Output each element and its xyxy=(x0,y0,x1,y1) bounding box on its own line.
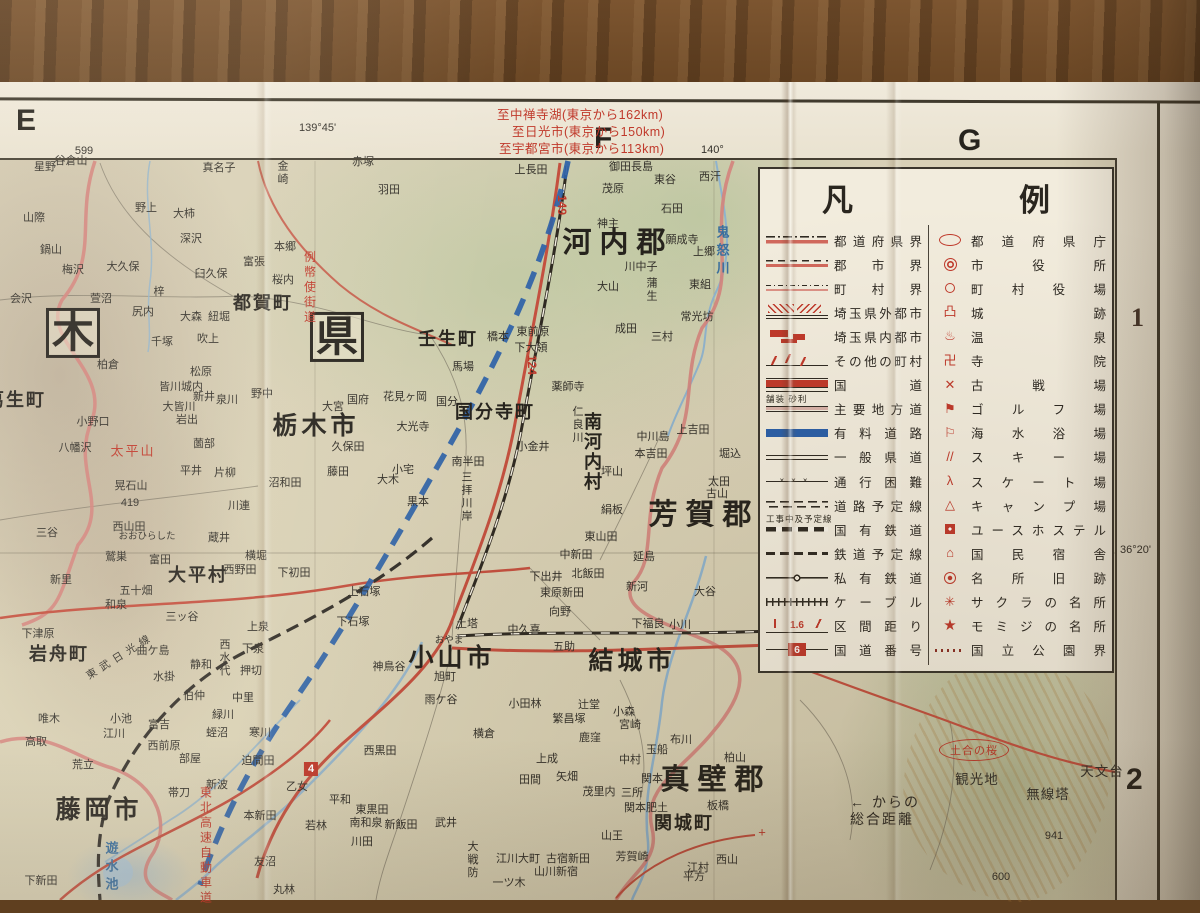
map-label: 柏山 xyxy=(724,749,746,765)
longitude-label: 140° xyxy=(701,144,724,156)
legend-label: ケーブル xyxy=(834,592,922,611)
legend-row: ユースホステル xyxy=(935,518,1106,540)
legend-row: 工事中及予定線道路予定線 xyxy=(766,494,922,516)
legend-row: 卍寺院 xyxy=(935,350,1106,372)
rail-planned-icon xyxy=(766,545,828,561)
map-label: 下大領 xyxy=(515,339,548,355)
ski-icon: // xyxy=(935,449,965,465)
legend-row: ✳サクラの名所 xyxy=(935,591,1106,613)
map-label: 中村 xyxy=(619,751,641,767)
map-label: 小池 xyxy=(110,710,132,726)
map-label: 押切 xyxy=(240,662,262,678)
map-frame-right xyxy=(1115,158,1117,900)
legend-columns: 都道府県界郡市界町村界埼玉県外都市埼玉県内都市その他の町村舗装 砂利国道主要地方… xyxy=(760,225,1112,665)
map-label: 西野田 xyxy=(224,561,257,577)
legend-row: 国立公園界 xyxy=(935,639,1106,661)
castle-icon: 凸 xyxy=(935,304,965,320)
map-label: 観光地 xyxy=(955,768,999,788)
map-label: 布川 xyxy=(670,731,692,747)
map-label: 無線塔 xyxy=(1026,783,1070,803)
map-label: 静和 xyxy=(190,656,212,672)
map-label: 国分寺町 xyxy=(455,398,535,424)
map-label: 上泉 xyxy=(247,618,269,634)
map-label: 山川新宿 xyxy=(534,863,578,879)
map-label: 板橋 xyxy=(707,797,729,813)
legend-label: 有料道路 xyxy=(834,423,922,442)
map-label: 鹿窪 xyxy=(579,729,601,745)
map-label: 新飯田 xyxy=(385,816,418,832)
map-frame-top xyxy=(0,158,1116,160)
map-label: 東前原 xyxy=(517,323,550,339)
map-label: 遊水池 xyxy=(102,841,121,895)
map-label: 星野 xyxy=(34,158,56,174)
map-label: 萱沼 xyxy=(90,290,112,306)
hostel-icon xyxy=(935,521,965,537)
map-label: 片柳 xyxy=(214,464,236,480)
map-label: 乙女 xyxy=(286,778,308,794)
map-label: 上長田 xyxy=(515,161,548,177)
map-label: 小野口 xyxy=(77,413,110,429)
legend-label: 区間距り xyxy=(834,616,922,635)
map-label: 八幡沢 xyxy=(59,439,92,455)
map-label: 臼久保 xyxy=(195,265,228,281)
legend-row: 埼玉県外都市 xyxy=(766,301,922,323)
legend-label: ゴルフ場 xyxy=(971,399,1106,418)
camp-icon: △ xyxy=(935,497,965,513)
map-label: 谷倉山 xyxy=(55,152,88,168)
map-label: 南半田 xyxy=(452,453,485,469)
legend-label: 国道 xyxy=(834,375,922,394)
map-label: 山際 xyxy=(23,209,45,225)
legend-row: 名所旧跡 xyxy=(935,567,1106,589)
map-label: 西前原 xyxy=(148,737,181,753)
legend-label: その他の町村 xyxy=(834,351,922,370)
map-label: 薗部 xyxy=(193,435,215,451)
map-label: 大谷 xyxy=(694,583,716,599)
map-label: 木 xyxy=(46,308,100,358)
map-label: 石田 xyxy=(661,200,683,216)
map-label: 田間 xyxy=(519,771,541,787)
map-label: 延島 xyxy=(633,548,655,564)
town-line-icon xyxy=(766,280,828,296)
map-label: 堀込 xyxy=(719,445,741,461)
legend-row: ✕古戦場 xyxy=(935,374,1106,396)
legend-label: 国民宿舎 xyxy=(971,544,1106,563)
map-label: 成田 xyxy=(615,320,637,336)
legend-label: 鉄道予定線 xyxy=(834,544,922,563)
legend-label: 埼玉県外都市 xyxy=(834,303,922,322)
map-label: 本新田 xyxy=(244,807,277,823)
map-label: 大宮 xyxy=(322,398,344,414)
legend-label: 名所旧跡 xyxy=(971,568,1106,587)
map-label: 和泉 xyxy=(105,596,127,612)
route-number-icon: 6 xyxy=(766,642,828,658)
map-label: 総合距離 xyxy=(850,809,914,829)
legend-label: 道路予定線 xyxy=(834,496,922,515)
legend-label: 寺院 xyxy=(971,351,1106,370)
map-label: 西水代 xyxy=(216,639,232,678)
map-label: 中新田 xyxy=(560,546,593,562)
map-label: 一ツ木 xyxy=(493,874,526,890)
map-label: 下石塚 xyxy=(337,613,370,629)
pref-office-icon xyxy=(935,232,965,248)
legend-row: 都道府県庁 xyxy=(935,229,1106,251)
map-label: 芳賀崎 xyxy=(616,848,649,864)
map-label: 野中 xyxy=(251,385,273,401)
map-label: 南和泉 xyxy=(350,814,383,830)
map-label: 三谷 xyxy=(36,524,58,540)
map-label: 川連 xyxy=(228,497,250,513)
legend-row: 町村役場 xyxy=(935,277,1106,299)
battlefield-icon: ✕ xyxy=(935,377,965,393)
map-label: 平方 xyxy=(683,868,705,884)
golf-icon: ⚑ xyxy=(935,401,965,417)
legend-label: 郡市界 xyxy=(834,255,922,274)
map-label: 600 xyxy=(992,871,1010,883)
legend-row: △キャンプ場 xyxy=(935,494,1106,516)
landmark-icon xyxy=(935,570,965,586)
map-label: 千塚 xyxy=(151,333,173,349)
legend-label: 埼玉県内都市 xyxy=(834,327,922,346)
map-label: 向野 xyxy=(549,603,571,619)
map-label: 平井 xyxy=(180,462,202,478)
map-label: 芳賀郡 xyxy=(648,491,759,533)
map-label: 本吉田 xyxy=(635,445,668,461)
legend-label: 通行困難 xyxy=(834,472,922,491)
map-label: おやま xyxy=(435,632,464,646)
expressway-planned xyxy=(200,161,568,885)
photo-of-road-map: 木県河内郡芳賀郡真壁郡小山市結城市栃木市藤岡市壬生町国分寺町都賀町関城町岩舟町葛… xyxy=(0,0,1200,900)
map-label: 大山 xyxy=(597,278,619,294)
latitude-label: 36°20' xyxy=(1120,544,1151,556)
map-label: 旭町 xyxy=(434,668,456,684)
map-label: 丸林 xyxy=(273,881,295,897)
map-label: 三村 xyxy=(651,328,673,344)
map-label: 419 xyxy=(121,497,139,509)
map-label: 西汗 xyxy=(699,168,721,184)
map-label: 都賀町 xyxy=(233,289,293,315)
map-label: 鍋山 xyxy=(40,241,62,257)
legend-label: 町村界 xyxy=(834,279,922,298)
map-label: 横倉 xyxy=(473,725,495,741)
map-label: 神鳥谷 xyxy=(373,658,406,674)
map-label: 葛生町 xyxy=(0,386,46,412)
map-label: 藤田 xyxy=(327,463,349,479)
map-label: 関本肥土 xyxy=(624,799,668,815)
map-label: 深沢 xyxy=(180,230,202,246)
map-label: 結城市 xyxy=(588,641,675,677)
map-label: 黒本 xyxy=(407,493,429,509)
map-label: 富張 xyxy=(243,253,265,269)
map-label: 友沼 xyxy=(254,853,276,869)
map-label: 緑川 xyxy=(212,706,234,722)
momiji-icon: ★ xyxy=(935,618,965,634)
map-label: 新里 xyxy=(50,571,72,587)
gun-line-icon xyxy=(766,256,828,272)
legend-label: 主要地方道 xyxy=(834,399,922,418)
map-label: 北飯田 xyxy=(572,565,605,581)
legend-label: 町村役場 xyxy=(971,279,1106,298)
legend-row: ×××通行困難 xyxy=(766,470,922,492)
legend-row: 国有鉄道 xyxy=(766,518,922,540)
grid-number-1: 1 xyxy=(1131,303,1144,333)
map-label: 国府 xyxy=(347,391,369,407)
map-label: 泉川 xyxy=(216,391,238,407)
map-label: 沼和田 xyxy=(269,474,302,490)
map-label: 平和 xyxy=(329,791,351,807)
legend-col-left: 都道府県界郡市界町村界埼玉県外都市埼玉県内都市その他の町村舗装 砂利国道主要地方… xyxy=(760,225,928,665)
map-label: 久保田 xyxy=(332,438,365,454)
legend-row: ⌂国民宿舎 xyxy=(935,542,1106,564)
legend-label: 私有鉄道 xyxy=(834,568,922,587)
other-town-icon xyxy=(766,353,828,369)
map-label: 下新田 xyxy=(25,872,58,888)
rail-jnr-icon xyxy=(766,521,828,537)
map-label: 国分 xyxy=(436,393,458,409)
map-label: 茂里内 xyxy=(583,783,616,799)
legend-row: その他の町村 xyxy=(766,350,922,372)
map-label: 五助 xyxy=(553,638,575,654)
map-label: 124 xyxy=(525,355,539,375)
map-label: 新河 xyxy=(626,578,648,594)
map-label: 馬場 xyxy=(452,358,474,374)
skate-icon: λ xyxy=(935,473,965,489)
legend-label: スケート場 xyxy=(971,472,1106,491)
rail-private-icon xyxy=(766,570,828,586)
map-label: 土塔 xyxy=(456,615,478,631)
legend-label: 国立公園界 xyxy=(971,640,1106,659)
map-label: 西山 xyxy=(716,851,738,867)
map-label: 絹板 xyxy=(601,501,623,517)
map-label: 唯木 xyxy=(38,710,60,726)
legend-label: 海水浴場 xyxy=(971,423,1106,442)
beach-icon: ⚐ xyxy=(935,425,965,441)
main-road-icon xyxy=(766,401,828,417)
legend-label: サクラの名所 xyxy=(971,592,1106,611)
map-label: 岩舟町 xyxy=(29,640,89,666)
map-label: 西黒田 xyxy=(364,742,397,758)
map-label: 大光寺 xyxy=(397,418,430,434)
map-label: 神主 xyxy=(597,215,619,231)
map-label: 薬師寺 xyxy=(552,378,585,394)
map-label: 羽田 xyxy=(378,181,400,197)
map-label: 三所 xyxy=(621,784,643,800)
legend-row: 6国道番号 xyxy=(766,639,922,661)
map-label: 土合の桜 xyxy=(939,739,1009,761)
legend-label: キャンプ場 xyxy=(971,496,1106,515)
sakura-icon: ✳ xyxy=(935,594,965,610)
legend-row: λスケート場 xyxy=(935,470,1106,492)
map-label: 下初田 xyxy=(278,564,311,580)
map-label: 高取 xyxy=(25,733,47,749)
map-label: 大森 xyxy=(180,308,202,324)
legend-row: 舗装 砂利国道 xyxy=(766,374,922,396)
map-label: 真壁郡 xyxy=(660,756,771,798)
town-office-icon xyxy=(935,280,965,296)
map-label: 三ッ谷 xyxy=(166,608,199,624)
toll-road-icon xyxy=(766,425,828,441)
map-label: 大柿 xyxy=(173,205,195,221)
map-label: 東原新田 xyxy=(540,584,584,600)
map-label: 大平村 xyxy=(168,561,228,587)
legend-row: ★モミジの名所 xyxy=(935,615,1106,637)
grid-letter-g: G xyxy=(958,124,981,158)
legend-label: 温泉 xyxy=(971,327,1106,346)
map-label: 水掛 xyxy=(153,668,175,684)
map-label: 149 xyxy=(555,195,569,215)
map-label: 山王 xyxy=(601,827,623,843)
map-label: 川田 xyxy=(351,833,373,849)
legend-row: ⚑ゴルフ場 xyxy=(935,398,1106,420)
legend-row: 有料道路 xyxy=(766,422,922,444)
temple-icon: 卍 xyxy=(935,353,965,369)
cable-icon xyxy=(766,594,828,610)
map-label: 橋本 xyxy=(487,328,509,344)
lodge-icon: ⌂ xyxy=(935,545,965,561)
map-label: 常光坊 xyxy=(681,308,714,324)
map-label: 寒川 xyxy=(249,724,271,740)
legend-row: 一般県道 xyxy=(766,446,922,468)
grid-number-2: 2 xyxy=(1126,763,1143,797)
legend-row: 市役所 xyxy=(935,253,1106,275)
map-label: 三拝川岸 xyxy=(458,471,474,523)
map-label: 晃石山 xyxy=(115,477,148,493)
map-label: 蔵井 xyxy=(208,529,230,545)
map-label: 野上 xyxy=(135,199,157,215)
map-label: 雨ケ谷 xyxy=(425,691,458,707)
map-label: 小田林 xyxy=(509,695,542,711)
legend-row: //スキー場 xyxy=(935,446,1106,468)
legend-row: 私有鉄道 xyxy=(766,567,922,589)
map-label: 梅沢 xyxy=(62,261,84,277)
map-label: 花見ヶ岡 xyxy=(383,388,427,404)
legend-label: 市役所 xyxy=(971,255,1106,274)
map-label: 松原 xyxy=(190,363,212,379)
map-label: + xyxy=(758,825,768,840)
park-line-icon xyxy=(935,642,965,658)
map-label: 鷲巣 xyxy=(105,548,127,564)
map-label: 東谷 xyxy=(654,171,676,187)
legend-col-right: 都道府県庁市役所町村役場凸城跡♨温泉卍寺院✕古戦場⚑ゴルフ場⚐海水浴場//スキー… xyxy=(928,225,1112,665)
legend-label: 都道府県界 xyxy=(834,231,922,250)
map-label: 東山田 xyxy=(585,528,618,544)
legend-row: 埼玉県内都市 xyxy=(766,325,922,347)
map-label: 紐堀 xyxy=(208,308,230,324)
legend-label: 国有鉄道 xyxy=(834,520,922,539)
difficult-icon: ××× xyxy=(766,473,828,489)
map-label: 中久喜 xyxy=(508,621,541,637)
map-label: 桜内 xyxy=(272,271,294,287)
map-label: 帯刀 xyxy=(168,784,190,800)
map-label: 矢畑 xyxy=(556,768,578,784)
longitude-label: 139°45' xyxy=(299,122,336,134)
legend-row: 町村界 xyxy=(766,277,922,299)
map-label: 赤塚 xyxy=(352,153,374,169)
map-label: 蛭沼 xyxy=(206,724,228,740)
legend-row: ケーブル xyxy=(766,591,922,613)
map-label: 小川 xyxy=(669,616,691,632)
map-label: 4 xyxy=(304,762,318,776)
map-label: 関本 xyxy=(641,770,663,786)
map-label: 大久保 xyxy=(107,258,140,274)
legend-row: 主要地方道 xyxy=(766,398,922,420)
map-label: 荒立 xyxy=(72,756,94,772)
map-label: 伯仲 xyxy=(183,687,205,703)
map-label: 仁良川 xyxy=(569,406,585,445)
map-label: 中里 xyxy=(232,689,254,705)
map-label: 上石塚 xyxy=(348,583,381,599)
map-label: 上吉田 xyxy=(677,421,710,437)
legend-row: ♨温泉 xyxy=(935,325,1106,347)
map-label: 吹上 xyxy=(197,330,219,346)
map-label: 下出井 xyxy=(530,568,563,584)
distance-note: 至宇都宮市(東京から113km) xyxy=(499,138,664,157)
map-label: 東組 xyxy=(689,276,711,292)
map-label: おおひらした xyxy=(118,528,175,542)
map-label: 御田長島 xyxy=(609,158,653,174)
map-label: 下津原 xyxy=(22,625,55,641)
city-office-icon xyxy=(935,256,965,272)
map-label: 壬生町 xyxy=(418,325,478,351)
map-label: 東北高速自動車道 xyxy=(198,786,215,906)
map-label: 富吉 xyxy=(148,716,170,732)
map-label: 坪山 xyxy=(601,463,623,479)
legend-label: ユースホステル xyxy=(971,520,1106,539)
legend-row: ⚐海水浴場 xyxy=(935,422,1106,444)
legend-label: スキー場 xyxy=(971,447,1106,466)
map-label: 藤岡市 xyxy=(55,790,142,826)
city-in-icon xyxy=(766,328,828,344)
map-label: 中川島 xyxy=(637,428,670,444)
city-out-icon xyxy=(766,304,828,320)
map-label: 下泉 xyxy=(242,640,264,656)
map-label: 真名子 xyxy=(203,159,236,175)
legend-row: 鉄道予定線 xyxy=(766,542,922,564)
distance-icon: 1.6 xyxy=(766,618,828,634)
map-label: 小金井 xyxy=(517,438,550,454)
map-label: 玉船 xyxy=(646,741,668,757)
map-label: 上成 xyxy=(536,750,558,766)
map-outer-border-right xyxy=(1157,101,1160,900)
map-label: 栃木市 xyxy=(272,406,359,442)
map-label: 茂原 xyxy=(602,180,624,196)
legend-label: 古戦場 xyxy=(971,375,1106,394)
map-label: 金崎 xyxy=(274,160,290,186)
map-label: 江川 xyxy=(103,725,125,741)
pref-road-icon xyxy=(766,449,828,465)
map-label: 武井 xyxy=(435,814,457,830)
pref-line-icon xyxy=(766,232,828,248)
map-label: 下福良 xyxy=(632,615,665,631)
map-label: 941 xyxy=(1045,830,1063,842)
map-label: 川中子 xyxy=(625,258,658,274)
map-label: 会沢 xyxy=(10,290,32,306)
map-label: 大戦防 xyxy=(464,841,480,880)
map-label: 大木 xyxy=(377,471,399,487)
map-label: 天文台 xyxy=(1080,760,1124,780)
map-label: 柏倉 xyxy=(97,356,119,372)
map-label: 迫間田 xyxy=(242,752,275,768)
map-label: 例幣使街道 xyxy=(302,251,319,326)
map-label: 皆川城内 xyxy=(159,378,203,394)
map-label: 富田 xyxy=(149,551,171,567)
map-label: 古山 xyxy=(706,485,728,501)
map-label: 蒲生 xyxy=(643,277,659,303)
legend-label: 城跡 xyxy=(971,303,1106,322)
legend-row: 都道府県界 xyxy=(766,229,922,251)
map-label: 鬼怒川 xyxy=(713,225,732,279)
map-label: 本郷 xyxy=(274,238,296,254)
